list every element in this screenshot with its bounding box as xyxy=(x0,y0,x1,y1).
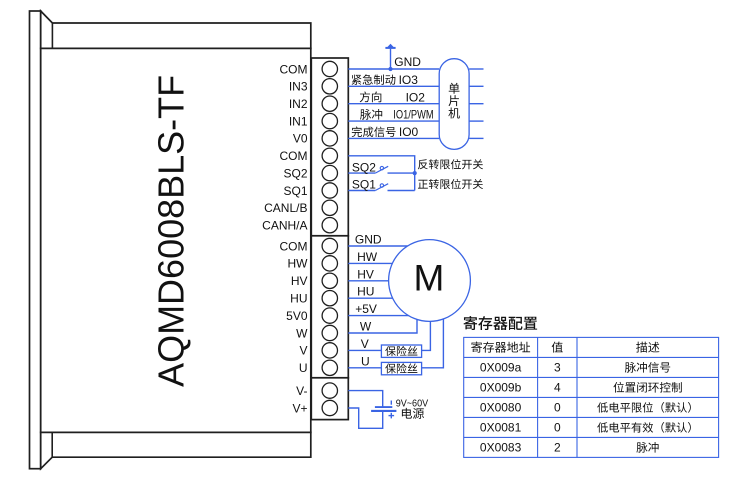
svg-text:AQMD6008BLS-TF: AQMD6008BLS-TF xyxy=(151,75,192,387)
svg-text:IN3: IN3 xyxy=(289,80,308,94)
svg-text:9V~60V: 9V~60V xyxy=(396,398,429,410)
svg-text:SQ2: SQ2 xyxy=(283,166,307,180)
svg-text:3: 3 xyxy=(554,361,561,375)
svg-text:V+: V+ xyxy=(292,401,307,415)
svg-text:SQ2: SQ2 xyxy=(352,160,376,174)
svg-text:5V0: 5V0 xyxy=(286,309,308,323)
svg-text:HV: HV xyxy=(291,274,308,288)
svg-text:0X0080: 0X0080 xyxy=(480,401,522,415)
svg-text:U: U xyxy=(299,361,308,375)
svg-text:IO0: IO0 xyxy=(399,125,419,139)
svg-text:HU: HU xyxy=(290,292,307,306)
svg-text:4: 4 xyxy=(554,381,561,395)
svg-text:COM: COM xyxy=(280,239,308,253)
svg-text:HV: HV xyxy=(357,267,374,281)
svg-text:V: V xyxy=(361,337,369,351)
svg-text:V-: V- xyxy=(296,384,307,398)
svg-text:IN2: IN2 xyxy=(289,97,308,111)
svg-text:CANH/A: CANH/A xyxy=(262,219,307,233)
svg-text:0: 0 xyxy=(554,421,561,435)
svg-text:0X009a: 0X009a xyxy=(480,361,522,375)
svg-text:CANL/B: CANL/B xyxy=(264,201,307,215)
svg-text:W: W xyxy=(296,326,308,340)
svg-text:HW: HW xyxy=(288,257,309,271)
svg-text:V: V xyxy=(299,344,307,358)
svg-text:U: U xyxy=(361,354,370,368)
svg-text:IN1: IN1 xyxy=(289,114,308,128)
svg-text:IO3: IO3 xyxy=(399,73,419,87)
svg-text:GND: GND xyxy=(394,55,421,69)
svg-text:W: W xyxy=(360,320,372,334)
svg-text:IO1/PWM: IO1/PWM xyxy=(393,108,433,122)
svg-text:HW: HW xyxy=(357,250,378,264)
svg-text:0X0083: 0X0083 xyxy=(480,441,522,455)
svg-text:COM: COM xyxy=(280,149,308,163)
svg-text:SQ1: SQ1 xyxy=(283,184,307,198)
svg-text:0X009b: 0X009b xyxy=(480,381,522,395)
svg-text:COM: COM xyxy=(280,62,308,76)
svg-text:HU: HU xyxy=(357,285,374,299)
svg-text:M: M xyxy=(413,258,444,299)
svg-text:SQ1: SQ1 xyxy=(352,178,376,192)
svg-text:0: 0 xyxy=(554,401,561,415)
svg-text:0X0081: 0X0081 xyxy=(480,421,522,435)
svg-text:GND: GND xyxy=(355,233,382,247)
svg-text:IO2: IO2 xyxy=(406,90,426,104)
svg-text:+5V: +5V xyxy=(355,302,377,316)
svg-text:2: 2 xyxy=(554,441,561,455)
svg-text:V0: V0 xyxy=(293,132,308,146)
